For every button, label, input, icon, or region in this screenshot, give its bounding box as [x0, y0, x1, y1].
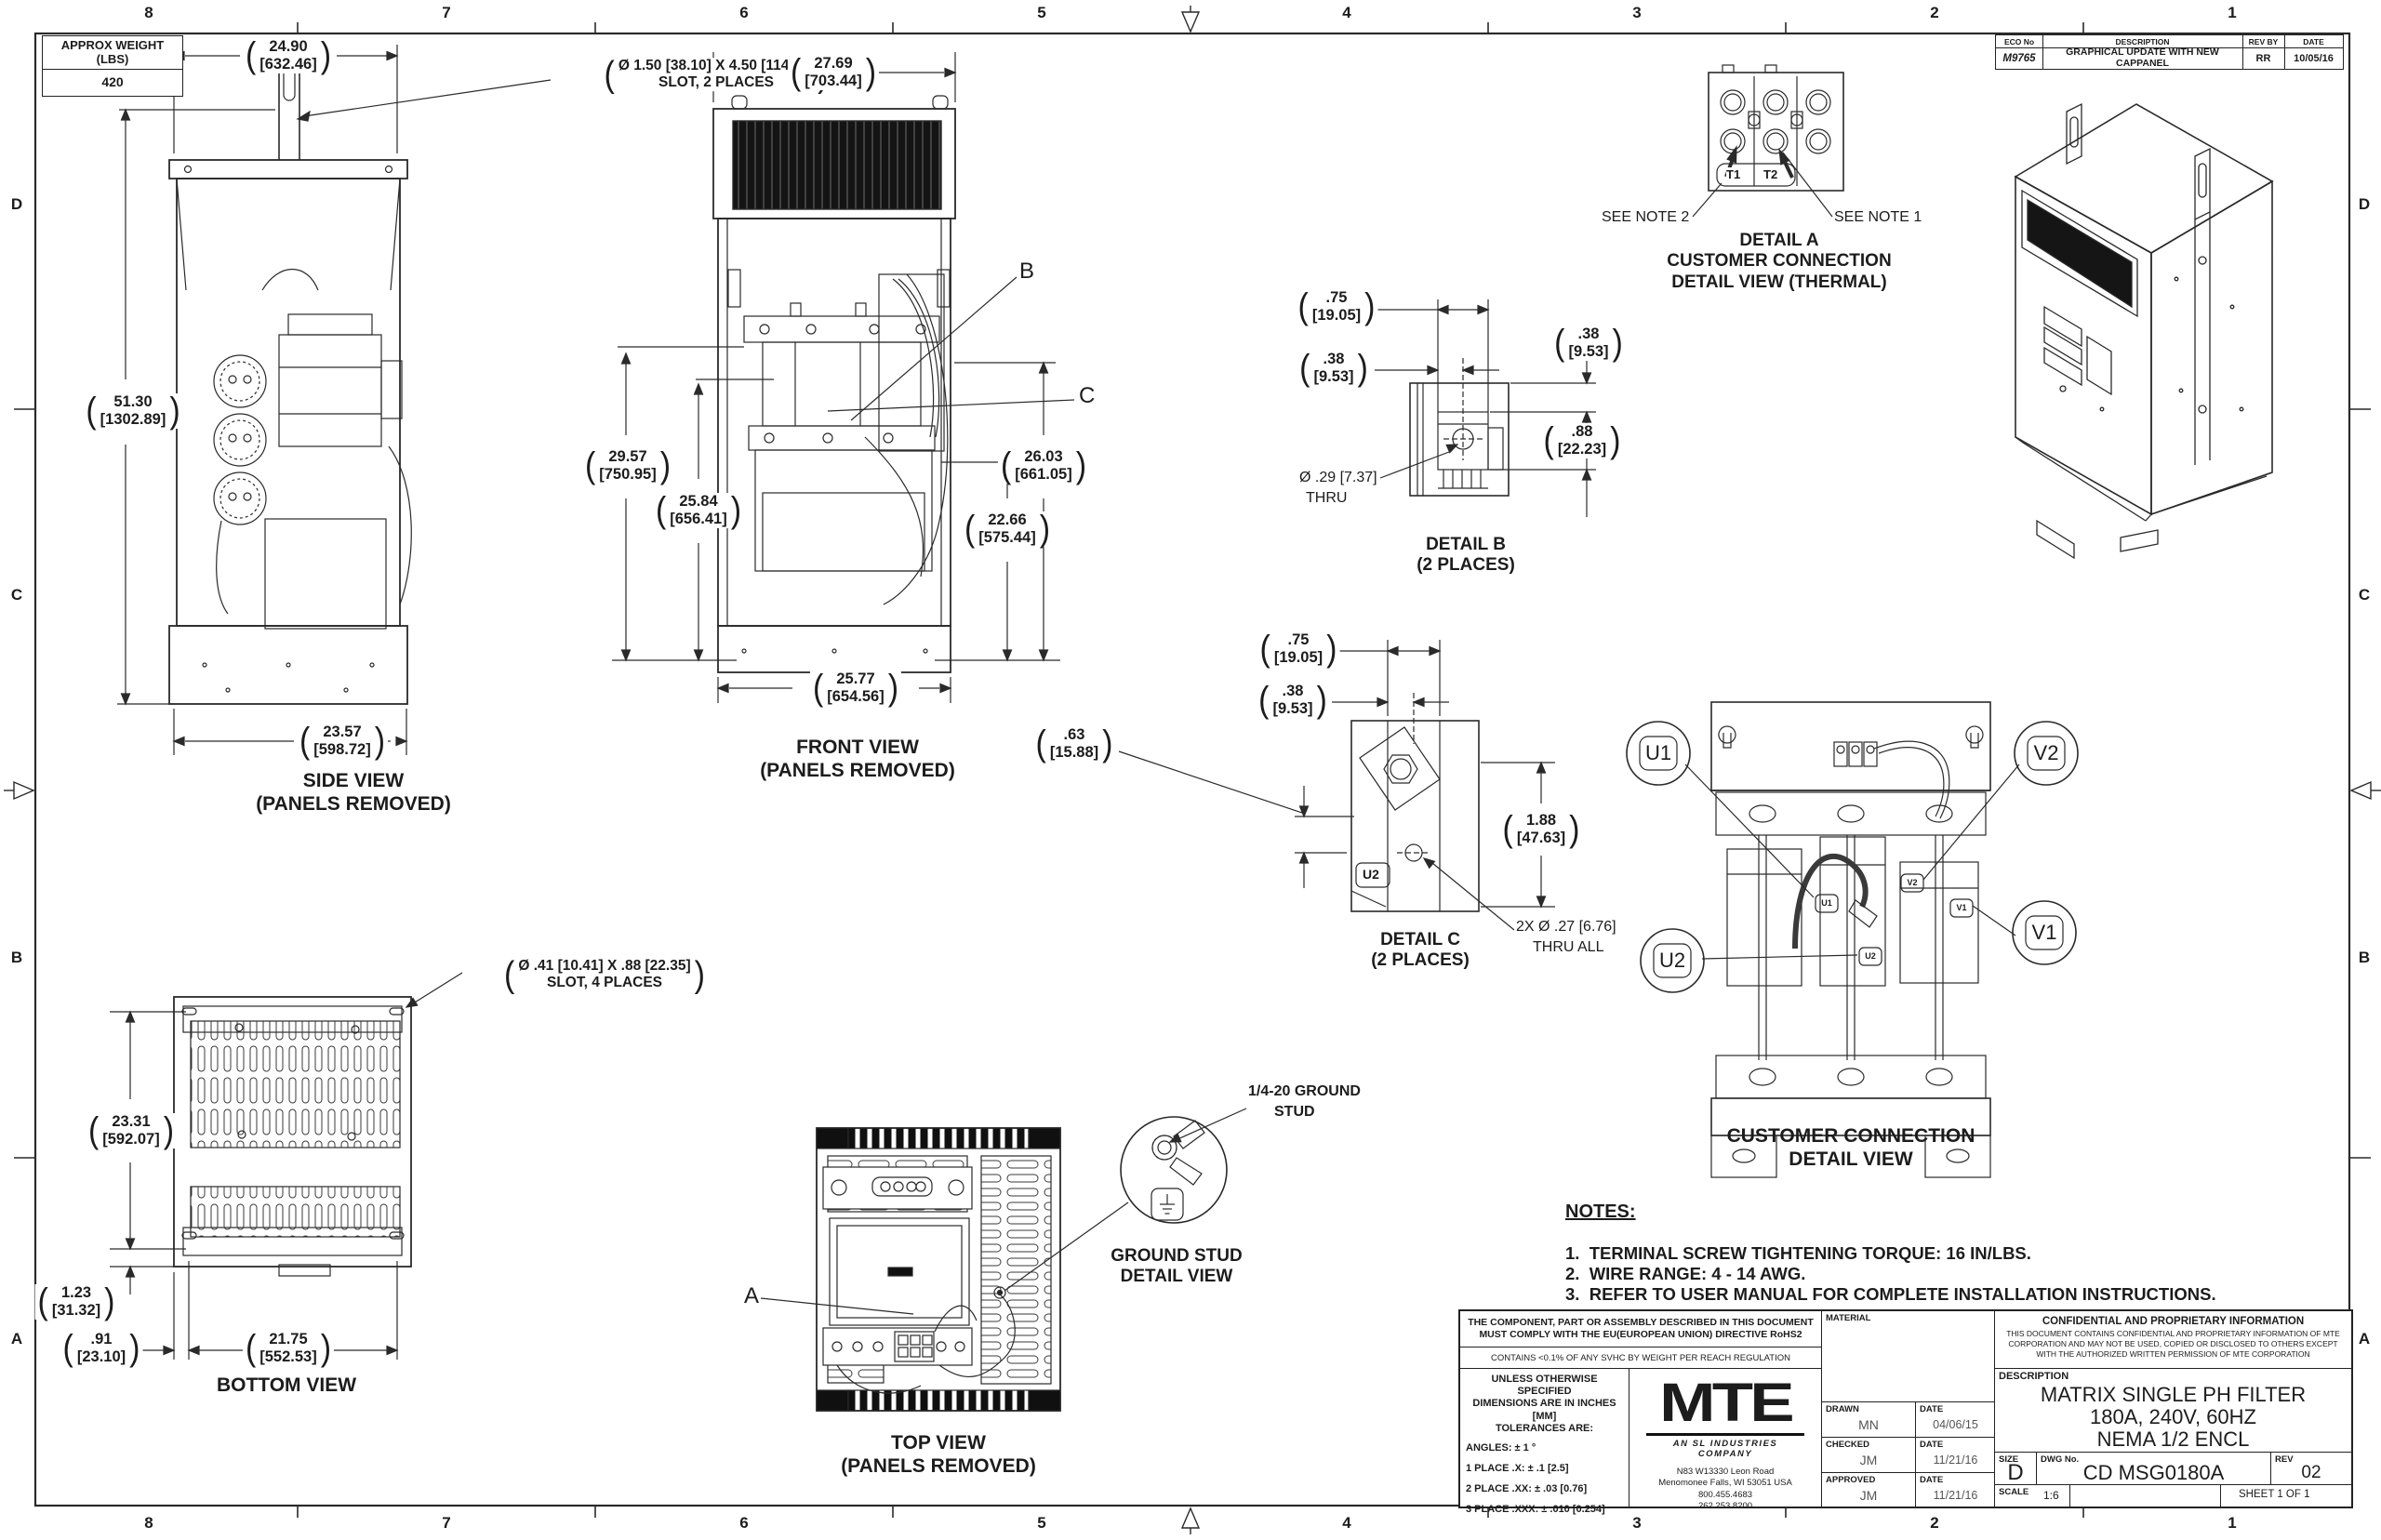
detail-a-title: DETAIL A CUSTOMER CONNECTION DETAIL VIEW… [1667, 231, 1891, 293]
dim-detail-c-63: (.63[15.88]) [1033, 726, 1116, 762]
material-cell: MATERIAL [1822, 1311, 1995, 1401]
callout-line2: SLOT, 2 PLACES [658, 74, 774, 91]
confidential-line: WITH THE AUTHORIZED WRITTEN PERMISSION O… [1995, 1349, 2351, 1360]
section-label-b: B [1019, 259, 1034, 285]
notes-title: NOTES: [1565, 1201, 2216, 1223]
dim-mm: [1302.89] [100, 411, 166, 429]
balloon-v2: V2 [2034, 741, 2059, 765]
bottom-view-title: BOTTOM VIEW [217, 1374, 356, 1398]
detail-c-drawing [1119, 640, 1555, 930]
front-view-title: FRONT VIEW (PANELS REMOVED) [760, 737, 955, 783]
dim-in: 25.84 [679, 493, 717, 511]
description-text: MATRIX SINGLE PH FILTER 180A, 240V, 60HZ… [1995, 1384, 2351, 1452]
approved-date: 11/21/16 [1916, 1482, 1995, 1507]
dim-in: 29.57 [608, 448, 646, 466]
dim-side-height: (51.30[1302.89]) [83, 393, 182, 429]
zone-left-c: C [11, 586, 22, 604]
zone-left-a: A [11, 1330, 22, 1348]
view-title-line: DETAIL VIEW [1727, 1148, 1975, 1172]
isometric-view-drawing [2015, 104, 2272, 558]
tol-line: TOLERANCES ARE: [1466, 1423, 1623, 1435]
detail-c-u2-tag: U2 [1363, 867, 1379, 882]
zone-bottom-4: 4 [1342, 1514, 1350, 1533]
view-title-line: (2 PLACES) [1371, 950, 1470, 971]
dim-mm: [552.53] [259, 1348, 316, 1366]
zone-right-d: D [2359, 195, 2370, 214]
drawn-date: 04/06/15 [1916, 1412, 1995, 1438]
zone-right-c: C [2359, 586, 2370, 604]
dim-in: 23.31 [112, 1113, 150, 1131]
dim-in: 27.69 [814, 55, 852, 73]
drawn-date-cell: DATE 04/06/15 [1916, 1402, 1995, 1438]
dim-mm: [15.88] [1050, 744, 1098, 762]
dim-in: .38 [1324, 351, 1345, 368]
dim-in: .75 [1288, 631, 1310, 649]
size-dwg-rev-row: SIZE D DWG No. CD MSG0180A REV 02 [1995, 1453, 2351, 1485]
detail-a-t2: T2 [1763, 167, 1777, 181]
callout-line1: Ø .41 [10.41] X .88 [22.35] [518, 958, 690, 975]
zone-top-5: 5 [1037, 4, 1045, 22]
detail-a-see-note-1: SEE NOTE 1 [1834, 209, 1922, 226]
callout-line2: SLOT, 4 PLACES [547, 975, 662, 991]
dim-front-bottom-width: (25.77[654.56]) [810, 670, 901, 706]
tol-line: DIMENSIONS ARE IN INCHES [MM] [1466, 1398, 1623, 1422]
dim-mm: [632.46] [259, 56, 316, 73]
detail-b-hole-callout-1: Ø .29 [7.37] [1299, 470, 1377, 486]
address-line: Menomonee Falls, WI 53051 USA [1629, 1478, 1821, 1489]
description-line: NEMA 1/2 ENCL [1995, 1428, 2351, 1451]
description-block: DESCRIPTION MATRIX SINGLE PH FILTER 180A… [1995, 1369, 2351, 1453]
eco-revby: RR [2242, 47, 2284, 69]
dim-in: 25.77 [836, 670, 874, 688]
dim-detail-c-75: (.75[19.05]) [1257, 631, 1340, 667]
tag-v1: V1 [1956, 903, 1966, 912]
eco-no: M9765 [1996, 47, 2042, 69]
dim-in: 1.23 [61, 1284, 91, 1302]
zone-top-4: 4 [1342, 4, 1350, 22]
view-title-line: DETAIL VIEW (THERMAL) [1667, 272, 1891, 293]
approved-date-cell: DATE 11/21/16 [1916, 1473, 1995, 1507]
dwg-cell: DWG No. CD MSG0180A [2037, 1453, 2271, 1485]
zone-top-1: 1 [2228, 4, 2236, 22]
sheet-number: SHEET 1 OF 1 [2239, 1489, 2309, 1500]
dim-in: .38 [1283, 683, 1304, 700]
mte-logo: MTE [1605, 1376, 1845, 1430]
address-line: 800.455.4683 [1629, 1490, 1821, 1501]
zone-top-6: 6 [739, 4, 748, 22]
size-cell: SIZE D [1995, 1453, 2037, 1485]
dim-in: 21.75 [269, 1331, 307, 1348]
description-line: 180A, 240V, 60HZ [1995, 1406, 2351, 1428]
view-title-line: DETAIL B [1417, 535, 1515, 555]
view-title-line: (PANELS REMOVED) [841, 1455, 1036, 1479]
dim-mm: [23.10] [77, 1348, 126, 1366]
material-label: MATERIAL [1826, 1313, 1870, 1323]
zone-bottom-3: 3 [1632, 1514, 1641, 1533]
dim-in: 51.30 [113, 393, 152, 411]
view-title-line: CUSTOMER CONNECTION [1667, 251, 1891, 272]
dim-mm: [9.53] [1568, 343, 1608, 361]
zone-bottom-1: 1 [2228, 1514, 2236, 1533]
zone-top-3: 3 [1632, 4, 1641, 22]
scale-value: 1:6 [2043, 1489, 2059, 1502]
dim-bottom-offset1: (1.23[31.32]) [35, 1284, 118, 1320]
zone-bottom-6: 6 [739, 1514, 748, 1533]
dim-front-h3: (26.03[661.05]) [998, 448, 1089, 484]
zone-bottom-5: 5 [1037, 1514, 1045, 1533]
zone-top-7: 7 [442, 4, 450, 22]
eco-header-desc: DESCRIPTION [2042, 35, 2242, 47]
detail-c-title: DETAIL C (2 PLACES) [1371, 930, 1470, 972]
dim-mm: [654.56] [827, 688, 884, 706]
drawn-row: DRAWN MN DATE 04/06/15 [1822, 1401, 1995, 1437]
tag-v2: V2 [1907, 878, 1917, 887]
section-label-a: A [744, 1283, 759, 1309]
eco-description: GRAPHICAL UPDATE WITH NEW CAPPANEL [2042, 47, 2242, 69]
view-title-line: CUSTOMER CONNECTION [1727, 1125, 1975, 1148]
tol-angles: ANGLES: ± 1 ° [1466, 1442, 1623, 1454]
detail-a-drawing [1693, 65, 1843, 217]
zone-top-8: 8 [144, 4, 153, 22]
front-view-drawing [612, 52, 1074, 703]
dim-in: 26.03 [1024, 448, 1062, 466]
ground-stud-callout-1: 1/4-20 GROUND [1248, 1083, 1361, 1100]
drawn-cell: DRAWN MN [1822, 1402, 1916, 1438]
dim-in: 23.57 [323, 724, 361, 741]
description-label: DESCRIPTION [1999, 1371, 2068, 1382]
dim-mm: [19.05] [1312, 307, 1361, 325]
checked-date: 11/21/16 [1916, 1447, 1995, 1473]
dim-mm: [575.44] [978, 529, 1035, 547]
customer-connection-drawing [1627, 702, 2078, 1177]
mte-address: N83 W13330 Leon Road Menomonee Falls, WI… [1629, 1467, 1821, 1512]
dim-side-bottom-width: (23.57[598.72]) [297, 724, 388, 759]
address-line: N83 W13330 Leon Road [1629, 1467, 1821, 1478]
detail-a-t1: T1 [1726, 167, 1740, 181]
detail-a-see-note-2: SEE NOTE 2 [1602, 209, 1689, 226]
detail-c-hole-callout-2: THRU ALL [1533, 939, 1603, 956]
dim-detail-c-38: (.38[9.53]) [1256, 683, 1330, 718]
tol-line: UNLESS OTHERWISE SPECIFIED [1466, 1374, 1623, 1398]
eco-header-revby: REV BY [2242, 35, 2284, 47]
dim-front-top-width: (27.69[703.44]) [788, 55, 879, 90]
rev-cell: REV 02 [2271, 1453, 2351, 1485]
dim-mm: [31.32] [52, 1302, 100, 1320]
compliance-rohs: THE COMPONENT, PART OR ASSEMBLY DESCRIBE… [1460, 1311, 1822, 1347]
tag-u2: U2 [1865, 951, 1876, 961]
eco-table: ECO No DESCRIPTION REV BY DATE M9765 GRA… [1995, 34, 2344, 70]
zone-top-2: 2 [1930, 4, 1938, 22]
view-title-line: (PANELS REMOVED) [760, 760, 955, 783]
view-title-line: (PANELS REMOVED) [256, 793, 451, 816]
dim-mm: [703.44] [805, 73, 861, 90]
drawn-value: MN [1822, 1412, 1915, 1438]
dim-bottom-width: (21.75[552.53]) [243, 1331, 334, 1366]
note-item-1: 1. TERMINAL SCREW TIGHTENING TORQUE: 16 … [1565, 1243, 2216, 1264]
tol-1place: 1 PLACE .X: ± .1 [2.5] [1466, 1463, 1623, 1474]
dim-in: .91 [91, 1331, 113, 1348]
side-view-title: SIDE VIEW (PANELS REMOVED) [256, 770, 451, 816]
tol-3place: 3 PLACE .XXX: ± .010 [0.254] [1466, 1504, 1623, 1515]
tolerance-block: UNLESS OTHERWISE SPECIFIED DIMENSIONS AR… [1460, 1369, 1629, 1507]
tolerance-header: UNLESS OTHERWISE SPECIFIED DIMENSIONS AR… [1466, 1374, 1623, 1435]
dim-in: .88 [1572, 423, 1593, 441]
zone-right-b: B [2359, 949, 2370, 967]
scale-sheet-row: SCALE 1:6 SHEET 1 OF 1 [1995, 1485, 2351, 1507]
dim-mm: [9.53] [1313, 368, 1353, 386]
top-view-title: TOP VIEW (PANELS REMOVED) [841, 1432, 1036, 1479]
approx-weight-title: APPROX WEIGHT (LBS) [43, 36, 182, 70]
dim-detail-b-88: (.88[22.23]) [1541, 423, 1624, 458]
view-title-line: SIDE VIEW [256, 770, 451, 793]
approved-row: APPROVED JM DATE 11/21/16 [1822, 1472, 1995, 1507]
eco-date: 10/05/16 [2284, 47, 2343, 69]
zone-bottom-2: 2 [1930, 1514, 1938, 1533]
address-line: 262.253.8200 [1629, 1501, 1821, 1512]
dim-in: 1.88 [1526, 812, 1556, 830]
bottom-view-drawing [110, 973, 462, 1360]
confidential-line: THIS DOCUMENT CONTAINS CONFIDENTIAL AND … [1995, 1329, 2351, 1339]
size-value: D [1995, 1460, 2036, 1485]
view-title-line: DETAIL VIEW [1111, 1267, 1242, 1287]
dim-mm: [661.05] [1015, 466, 1071, 484]
dim-mm: [656.41] [670, 511, 726, 528]
balloon-v1: V1 [2032, 921, 2057, 945]
view-title-line: TOP VIEW [841, 1432, 1036, 1455]
rev-value: 02 [2271, 1460, 2351, 1485]
mte-tagline: AN SL INDUSTRIES COMPANY [1646, 1433, 1804, 1459]
dim-detail-c-188: (1.88[47.63]) [1500, 812, 1583, 847]
description-line: MATRIX SINGLE PH FILTER [1995, 1384, 2351, 1406]
zone-bottom-8: 8 [144, 1514, 153, 1533]
dim-in: .75 [1326, 289, 1348, 307]
dim-front-h2: (25.84[656.41]) [653, 493, 744, 528]
detail-c-hole-callout-1: 2X Ø .27 [6.76] [1516, 919, 1616, 936]
confidential-block: CONFIDENTIAL AND PROPRIETARY INFORMATION… [1995, 1311, 2351, 1369]
balloon-u2: U2 [1659, 949, 1685, 973]
customer-connection-title: CUSTOMER CONNECTION DETAIL VIEW [1727, 1125, 1975, 1172]
view-title-line: FRONT VIEW [760, 737, 955, 760]
dwg-number: CD MSG0180A [2037, 1460, 2270, 1485]
mte-logo-block: MTE AN SL INDUSTRIES COMPANY N83 W13330 … [1629, 1369, 1822, 1507]
compliance-line: THE COMPONENT, PART OR ASSEMBLY DESCRIBE… [1468, 1317, 1814, 1329]
approx-weight-table: APPROX WEIGHT (LBS) 420 [42, 35, 183, 97]
scale-label: SCALE [1999, 1487, 2029, 1497]
notes-block: NOTES: 1. TERMINAL SCREW TIGHTENING TORQ… [1565, 1201, 2216, 1304]
note-item-2: 2. WIRE RANGE: 4 - 14 AWG. [1565, 1264, 2216, 1284]
dim-detail-b-38-left: (.38[9.53]) [1297, 351, 1371, 386]
dim-mm: [750.95] [599, 466, 656, 484]
ground-stud-title: GROUND STUD DETAIL VIEW [1111, 1246, 1242, 1288]
tol-2place: 2 PLACE .XX: ± .03 [0.76] [1466, 1483, 1623, 1494]
dim-mm: [598.72] [313, 741, 370, 759]
detail-b-hole-callout-2: THRU [1306, 490, 1347, 507]
section-label-c: C [1079, 383, 1095, 409]
confidential-title: CONFIDENTIAL AND PROPRIETARY INFORMATION [1995, 1316, 2351, 1327]
dim-mm: [47.63] [1517, 830, 1565, 847]
title-block: THE COMPONENT, PART OR ASSEMBLY DESCRIBE… [1458, 1309, 2353, 1508]
dim-bottom-offset2: (.91[23.10]) [60, 1331, 143, 1366]
confidential-line: CORPORATION AND MAY NOT BE USED, COPIED … [1995, 1339, 2351, 1349]
dim-detail-b-38-right: (.38[9.53]) [1551, 325, 1626, 361]
view-title-line: DETAIL C [1371, 930, 1470, 950]
checked-cell: CHECKED JM [1822, 1438, 1916, 1473]
dim-detail-b-75: (.75[19.05]) [1296, 289, 1378, 325]
dim-in: 22.66 [988, 511, 1026, 529]
dim-bottom-height: (23.31[592.07]) [86, 1113, 177, 1148]
checked-value: JM [1822, 1447, 1915, 1473]
compliance-line: MUST COMPLY WITH THE EU(EUROPEAN UNION) … [1479, 1329, 1802, 1341]
approx-weight-value: 420 [43, 70, 182, 94]
dim-front-h4: (22.66[575.44]) [962, 511, 1053, 547]
zone-right-a: A [2359, 1330, 2370, 1348]
callout-line1: Ø 1.50 [38.10] X 4.50 [114.30] [619, 58, 814, 74]
checked-row: CHECKED JM DATE 11/21/16 [1822, 1437, 1995, 1472]
eco-header-date: DATE [2284, 35, 2343, 47]
detail-b-title: DETAIL B (2 PLACES) [1417, 535, 1515, 577]
view-title-line: DETAIL A [1667, 231, 1891, 251]
view-title-line: GROUND STUD [1111, 1246, 1242, 1267]
compliance-reach: CONTAINS <0.1% OF ANY SVHC BY WEIGHT PER… [1460, 1347, 1822, 1369]
engineering-drawing-sheet: 8 7 6 5 4 3 2 1 8 7 6 5 4 3 2 1 D C B A … [0, 0, 2381, 1540]
dim-in: 24.90 [269, 38, 307, 56]
dim-mm: [19.05] [1274, 649, 1323, 667]
zone-left-b: B [11, 949, 22, 967]
dim-in: .63 [1064, 726, 1085, 744]
dim-side-top-width: (24.90[632.46]) [243, 38, 334, 73]
dim-mm: [592.07] [102, 1131, 159, 1148]
confidential-body: THIS DOCUMENT CONTAINS CONFIDENTIAL AND … [1995, 1329, 2351, 1360]
approved-value: JM [1822, 1482, 1915, 1507]
dim-mm: [9.53] [1272, 700, 1312, 718]
checked-date-cell: DATE 11/21/16 [1916, 1438, 1995, 1473]
approved-cell: APPROVED JM [1822, 1473, 1916, 1507]
note-item-3: 3. REFER TO USER MANUAL FOR COMPLETE INS… [1565, 1284, 2216, 1305]
zone-bottom-7: 7 [442, 1514, 450, 1533]
view-title-line: BOTTOM VIEW [217, 1374, 356, 1398]
eco-header-no: ECO No [1996, 35, 2042, 47]
zone-left-d: D [11, 195, 22, 214]
ground-stud-callout-2: STUD [1274, 1104, 1315, 1121]
slot-callout-bottom: (Ø .41 [10.41] X .88 [22.35]SLOT, 4 PLAC… [501, 958, 708, 991]
view-title-line: (2 PLACES) [1417, 555, 1515, 576]
dim-in: .38 [1578, 325, 1600, 343]
dim-mm: [22.23] [1558, 441, 1606, 458]
dim-front-h1: (29.57[750.95]) [582, 448, 673, 484]
balloon-u1: U1 [1645, 741, 1671, 765]
tag-u1: U1 [1821, 898, 1832, 908]
